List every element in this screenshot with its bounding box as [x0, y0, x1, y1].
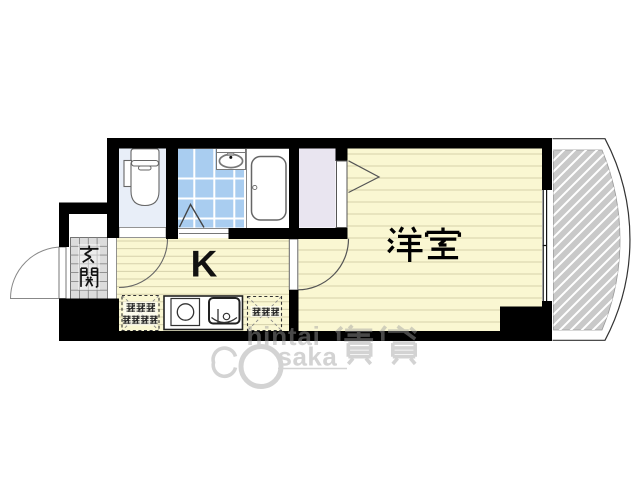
svg-text:K: K — [191, 244, 218, 285]
svg-text:saka: saka — [278, 342, 338, 372]
